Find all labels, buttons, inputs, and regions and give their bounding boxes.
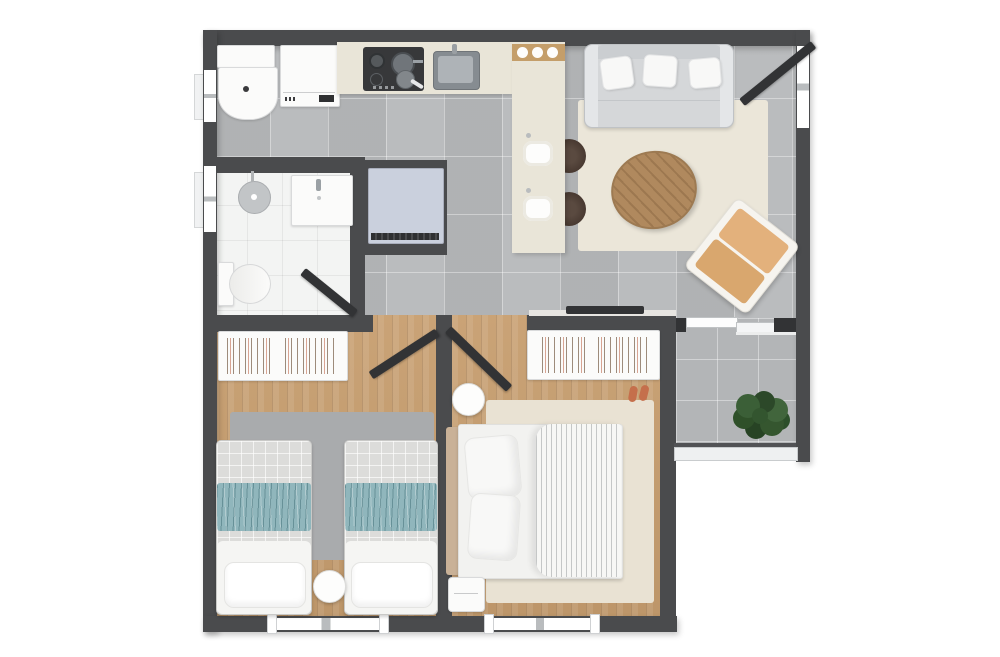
bathroom-vanity bbox=[291, 175, 353, 226]
fridge-vent bbox=[371, 233, 439, 240]
shower-head bbox=[238, 181, 271, 214]
master-pillow-2 bbox=[467, 492, 521, 561]
sofa-pillow-2 bbox=[642, 54, 678, 88]
laundry-shelf bbox=[217, 45, 275, 68]
master-wardrobe-hangers-2 bbox=[598, 337, 650, 373]
sliding-door-cap-left bbox=[676, 318, 686, 332]
master-wardrobe-hangers-1 bbox=[542, 337, 588, 373]
washer-control-block bbox=[319, 95, 334, 102]
vanity-faucet bbox=[316, 179, 321, 191]
kitchen-island bbox=[512, 42, 565, 253]
balcony-railing bbox=[674, 447, 798, 461]
kitchen-faucet bbox=[452, 44, 457, 54]
toilet-bowl bbox=[229, 264, 271, 304]
floor-plan bbox=[0, 0, 1000, 657]
sofa bbox=[584, 44, 734, 128]
island-place-setting-2 bbox=[523, 196, 553, 221]
sliding-door-cap-right bbox=[774, 318, 796, 332]
master-pillow-1 bbox=[463, 434, 522, 500]
master-duvet bbox=[536, 424, 621, 577]
wall-laundry-divider bbox=[203, 157, 353, 173]
twin-wardrobe bbox=[218, 331, 348, 381]
sofa-pillow-3 bbox=[688, 57, 722, 90]
twin-bed-2-blanket bbox=[345, 483, 437, 531]
pot-small bbox=[369, 53, 385, 69]
island-cutlery-2 bbox=[526, 188, 531, 193]
window-left-lower bbox=[204, 166, 216, 232]
console-items bbox=[566, 306, 644, 314]
laundry-sink bbox=[218, 67, 278, 120]
sofa-armrest-right bbox=[720, 45, 733, 127]
sofa-seat-line bbox=[598, 100, 720, 101]
laundry-sink-drain bbox=[243, 86, 249, 92]
sliding-door-track bbox=[736, 332, 796, 335]
twin-bed-1 bbox=[216, 440, 312, 615]
island-dish-2 bbox=[532, 47, 543, 58]
window-cap-twin-left bbox=[267, 614, 277, 634]
island-place-setting-1 bbox=[523, 141, 553, 166]
twin-bedside-table bbox=[313, 570, 346, 603]
cooktop-knobs bbox=[373, 86, 395, 89]
twin-wardrobe-hangers-2 bbox=[285, 338, 339, 374]
washing-machine bbox=[280, 45, 340, 107]
window-bottom-master bbox=[488, 618, 592, 630]
shower-head-center bbox=[251, 194, 257, 200]
island-dish-1 bbox=[517, 47, 528, 58]
twin-bed-1-blanket bbox=[217, 483, 311, 531]
balcony-plant bbox=[752, 408, 768, 424]
shower-arm bbox=[251, 171, 254, 182]
wall-master-east bbox=[660, 315, 676, 632]
island-cutlery-1 bbox=[526, 133, 531, 138]
twin-bed-1-pillow bbox=[224, 562, 306, 608]
vanity-drain bbox=[317, 196, 321, 200]
pot-handle bbox=[413, 60, 423, 63]
window-left-upper bbox=[204, 70, 216, 122]
island-wood-cap bbox=[512, 44, 565, 61]
kitchen-sink bbox=[433, 51, 480, 90]
twin-wardrobe-hangers-1 bbox=[227, 338, 271, 374]
window-cap-twin-right bbox=[379, 614, 389, 634]
cooktop bbox=[363, 47, 424, 91]
sliding-door-panel-1 bbox=[686, 317, 738, 328]
burner bbox=[370, 73, 383, 86]
nightstand-drawer-line bbox=[454, 593, 478, 594]
kitchen-sink-basin bbox=[438, 56, 473, 83]
sofa-armrest-left bbox=[585, 45, 598, 127]
twin-bed-2 bbox=[344, 440, 438, 615]
window-bottom-twin bbox=[271, 618, 381, 630]
master-nightstand bbox=[448, 577, 485, 612]
washer-buttons bbox=[285, 97, 297, 101]
island-dish-3 bbox=[547, 47, 558, 58]
master-wardrobe bbox=[527, 330, 660, 380]
master-side-table bbox=[452, 383, 485, 416]
washer-panel-line bbox=[283, 92, 335, 93]
twin-bed-2-pillow bbox=[351, 562, 433, 608]
fridge bbox=[368, 168, 444, 244]
wall-bathroom-south bbox=[203, 315, 373, 332]
floor-balcony bbox=[676, 318, 798, 446]
sofa-pillow-1 bbox=[599, 55, 635, 91]
window-cap-master-left bbox=[484, 614, 494, 634]
window-cap-master-right bbox=[590, 614, 600, 634]
master-bed bbox=[446, 424, 621, 577]
